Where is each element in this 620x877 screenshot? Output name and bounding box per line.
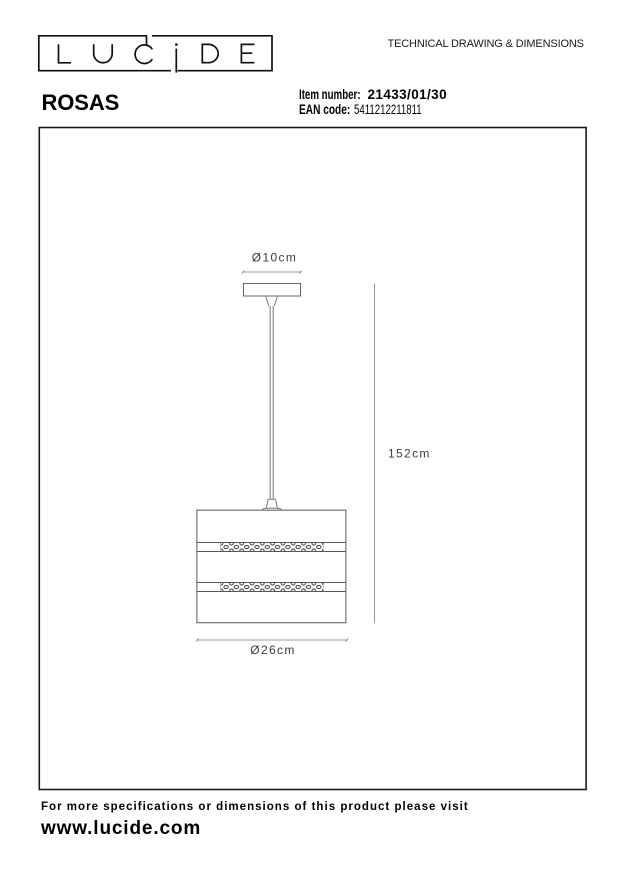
svg-text:Ø10cm: Ø10cm [252, 251, 297, 265]
svg-text:152cm: 152cm [388, 447, 431, 461]
svg-text:Ø26cm: Ø26cm [250, 643, 295, 657]
